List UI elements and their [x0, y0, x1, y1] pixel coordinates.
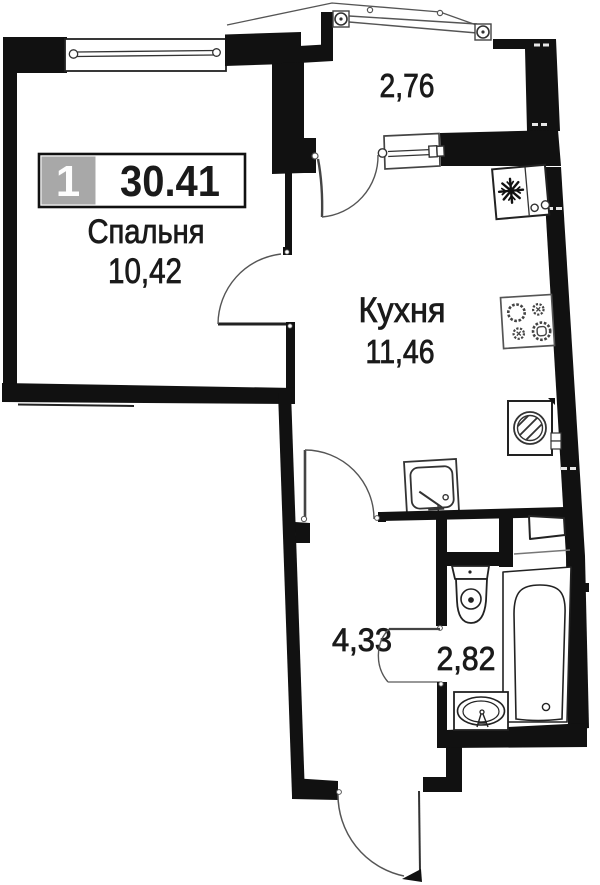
svg-text:10,42: 10,42: [108, 252, 182, 291]
svg-text:30.41: 30.41: [120, 157, 220, 206]
svg-text:Кухня: Кухня: [359, 291, 446, 330]
svg-text:Спальня: Спальня: [88, 213, 205, 251]
svg-text:11,46: 11,46: [366, 333, 435, 370]
svg-text:1: 1: [56, 157, 80, 206]
svg-text:4,33: 4,33: [332, 622, 392, 658]
svg-text:2,76: 2,76: [380, 67, 435, 104]
svg-text:2,82: 2,82: [437, 640, 496, 677]
